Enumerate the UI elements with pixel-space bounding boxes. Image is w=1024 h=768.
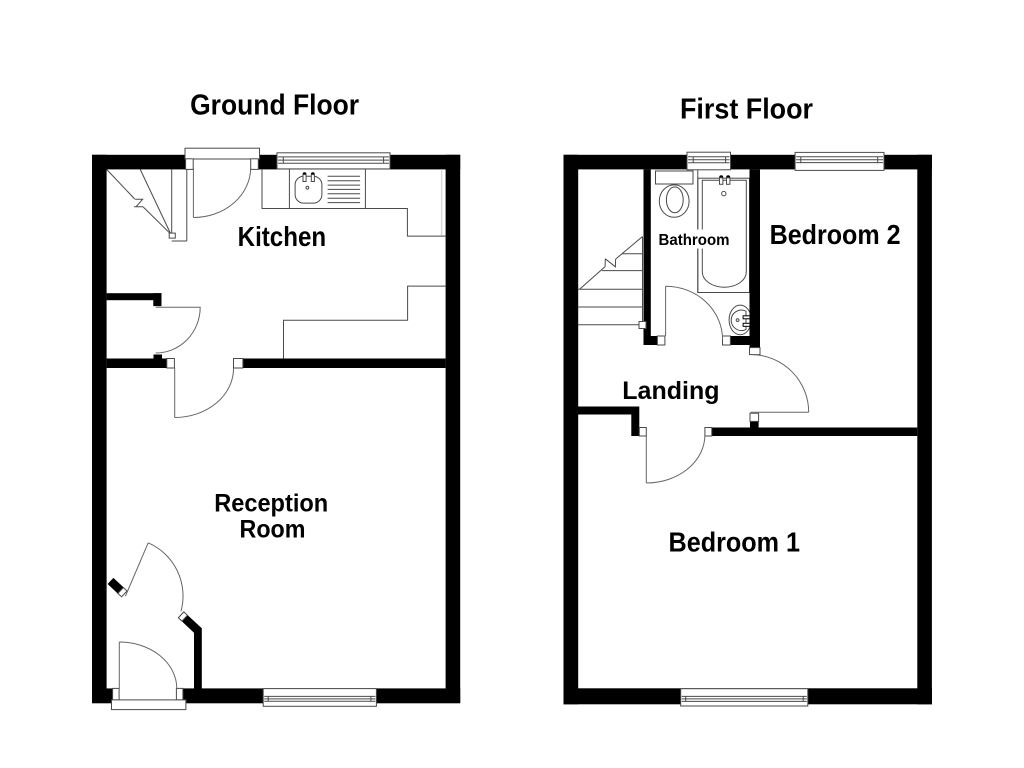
svg-text:Landing: Landing — [622, 377, 719, 405]
svg-text:First Floor: First Floor — [680, 94, 813, 126]
svg-text:Reception: Reception — [214, 490, 328, 518]
svg-text:Bedroom 2: Bedroom 2 — [770, 219, 901, 250]
svg-text:Room: Room — [240, 515, 306, 543]
svg-text:Bedroom 1: Bedroom 1 — [669, 527, 801, 558]
svg-text:Kitchen: Kitchen — [238, 221, 327, 252]
svg-text:Bathroom: Bathroom — [659, 232, 730, 249]
svg-text:Ground Floor: Ground Floor — [190, 90, 359, 122]
